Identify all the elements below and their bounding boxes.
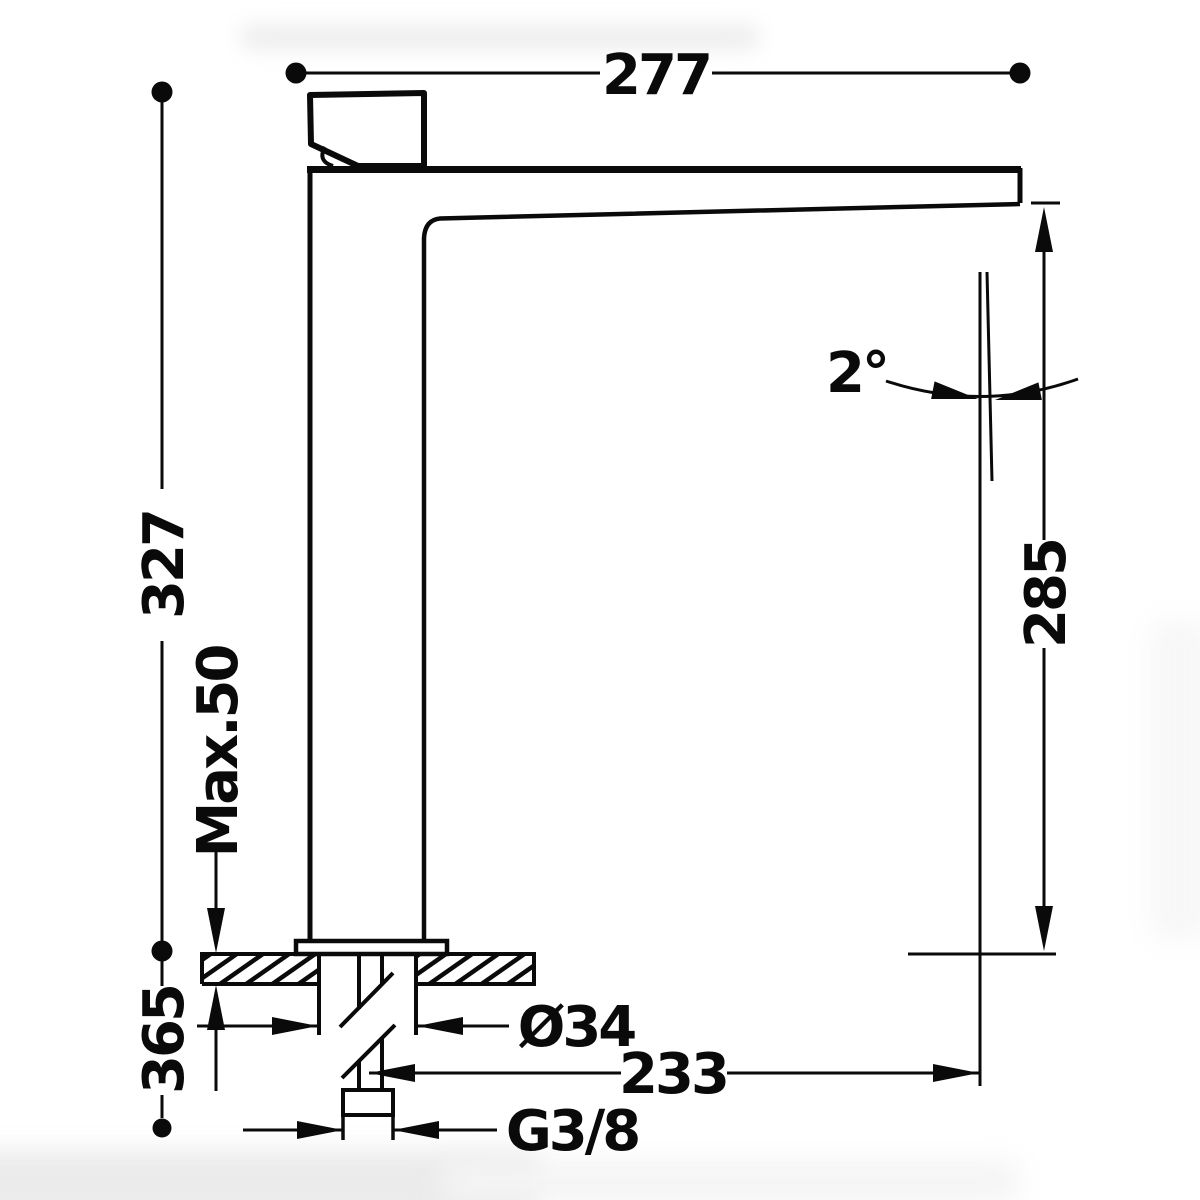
faucet-dimension-drawing: 277 327 365 Max.50 285 xyxy=(0,0,1200,1200)
deck-hatch-right xyxy=(416,954,534,984)
dim-angle-label: 2° xyxy=(826,341,887,406)
dim-233-label: 233 xyxy=(619,1042,727,1107)
dim-angle-2deg: 2° xyxy=(826,341,1078,409)
dim-285-label: 285 xyxy=(1014,540,1079,648)
spout-underside xyxy=(424,204,1020,941)
outlet-axis-tilted-2deg xyxy=(987,272,992,481)
dim-endpoint-dot xyxy=(286,63,307,84)
lever-handle xyxy=(310,93,424,166)
dim-365: 365 xyxy=(132,960,197,1138)
break-line-upper xyxy=(340,973,393,1027)
arrowhead-down-icon xyxy=(1035,906,1053,951)
arrowhead-right-icon xyxy=(297,1121,343,1139)
thread-extension-ticks xyxy=(343,1115,393,1140)
dim-dia34-label: Ø34 xyxy=(518,995,636,1060)
dim-endpoint-dot xyxy=(152,82,173,103)
dim-max50-label: Max.50 xyxy=(186,646,251,858)
faucet-body xyxy=(296,93,1021,954)
supply-tube-upper xyxy=(359,954,382,1009)
arrowhead-down-icon xyxy=(207,908,225,953)
arrowhead-up-icon xyxy=(207,985,225,1030)
dimension-drawing-svg: 277 327 365 Max.50 285 xyxy=(0,0,1200,1200)
arrowhead-right-icon xyxy=(272,1017,318,1035)
dim-endpoint-dot xyxy=(152,941,173,962)
thread-connector xyxy=(343,1090,393,1115)
arrowhead-right-icon xyxy=(933,1064,979,1082)
angle-arc xyxy=(886,379,1078,397)
base-plate xyxy=(296,941,447,954)
dim-277: 277 xyxy=(286,43,1031,108)
deck-hatch-left xyxy=(202,954,319,984)
dim-327-label: 327 xyxy=(132,511,197,619)
dim-g38-label: G3/8 xyxy=(506,1099,638,1164)
dim-365-label: 365 xyxy=(132,986,197,1094)
arrowhead-right-icon xyxy=(931,381,980,407)
dim-277-label: 277 xyxy=(602,43,710,108)
dim-endpoint-dot xyxy=(153,1119,172,1138)
dim-g38: G3/8 xyxy=(243,1099,638,1164)
dim-endpoint-dot xyxy=(1010,63,1031,84)
supply-tube-lower xyxy=(359,1038,382,1091)
dim-233: 233 xyxy=(369,1042,979,1107)
countertop-section xyxy=(202,954,534,984)
dim-285: 285 xyxy=(1014,207,1079,951)
shank-assembly xyxy=(319,954,416,1140)
